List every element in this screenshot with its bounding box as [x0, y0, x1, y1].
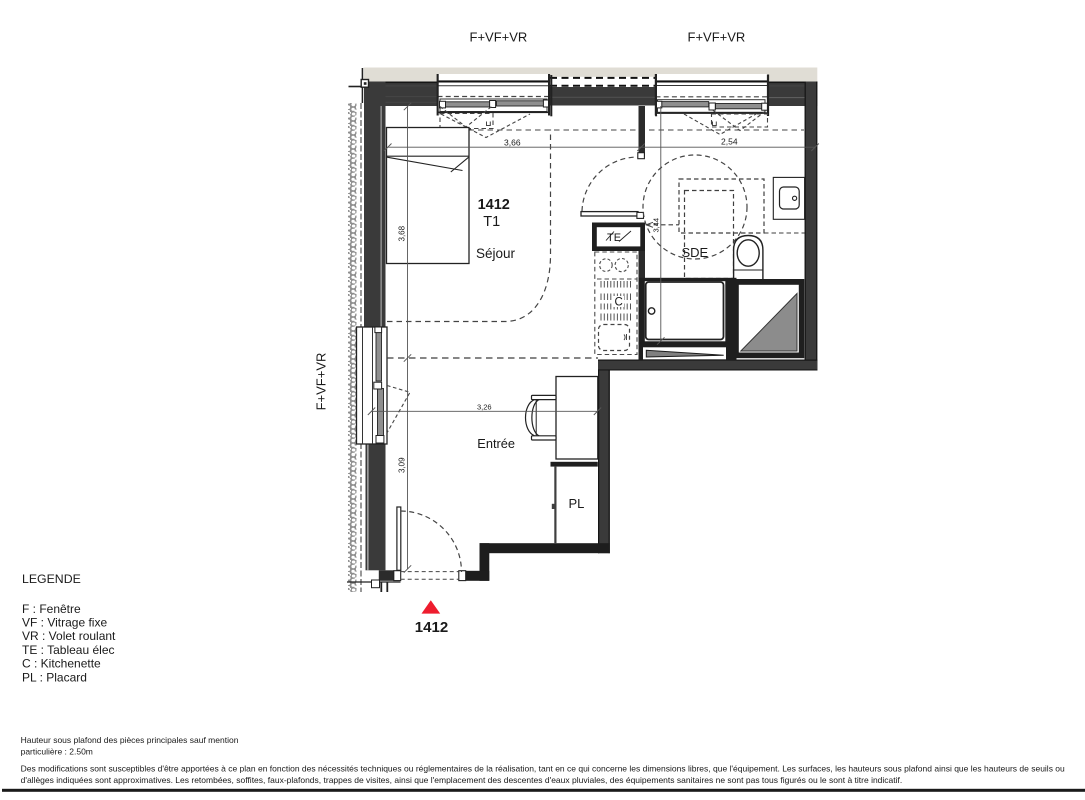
svg-text:d'allèges indiquées sont appro: d'allèges indiquées sont approximatives.… [21, 775, 903, 785]
svg-text:1412: 1412 [478, 197, 510, 213]
svg-text:Séjour: Séjour [476, 246, 516, 261]
svg-text:PL : Placard: PL : Placard [22, 670, 87, 684]
svg-text:SDE: SDE [682, 245, 709, 260]
svg-text:T1: T1 [483, 214, 500, 230]
svg-text:F+VF+VR: F+VF+VR [688, 29, 746, 44]
svg-text:TE: TE [607, 232, 621, 244]
svg-text:3,09: 3,09 [398, 457, 407, 473]
svg-text:C: C [615, 297, 623, 309]
svg-text:3,26: 3,26 [477, 402, 492, 411]
svg-text:C : Kitchenette: C : Kitchenette [22, 657, 101, 671]
svg-text:PL: PL [569, 496, 585, 511]
svg-text:2,54: 2,54 [721, 137, 738, 147]
svg-text:TE : Tableau élec: TE : Tableau élec [22, 643, 115, 657]
svg-text:Des modifications sont suscept: Des modifications sont susceptibles d'êt… [21, 763, 1065, 773]
svg-text:particulière : 2.50m: particulière : 2.50m [21, 747, 93, 757]
svg-text:3,66: 3,66 [504, 138, 521, 148]
svg-text:F+VF+VR: F+VF+VR [470, 29, 528, 44]
svg-text:3,44: 3,44 [652, 218, 661, 233]
svg-text:3,68: 3,68 [398, 225, 407, 241]
svg-text:F+VF+VR: F+VF+VR [314, 353, 329, 411]
svg-text:LEGENDE: LEGENDE [22, 572, 81, 586]
svg-text:Hauteur sous plafond des pièce: Hauteur sous plafond des pièces principa… [21, 735, 239, 745]
svg-text:1412: 1412 [415, 619, 448, 636]
svg-text:F : Fenêtre: F : Fenêtre [22, 602, 81, 616]
svg-text:Entrée: Entrée [477, 436, 515, 451]
svg-text:VR : Volet roulant: VR : Volet roulant [22, 629, 116, 643]
svg-text:VF : Vitrage fixe: VF : Vitrage fixe [22, 616, 107, 630]
